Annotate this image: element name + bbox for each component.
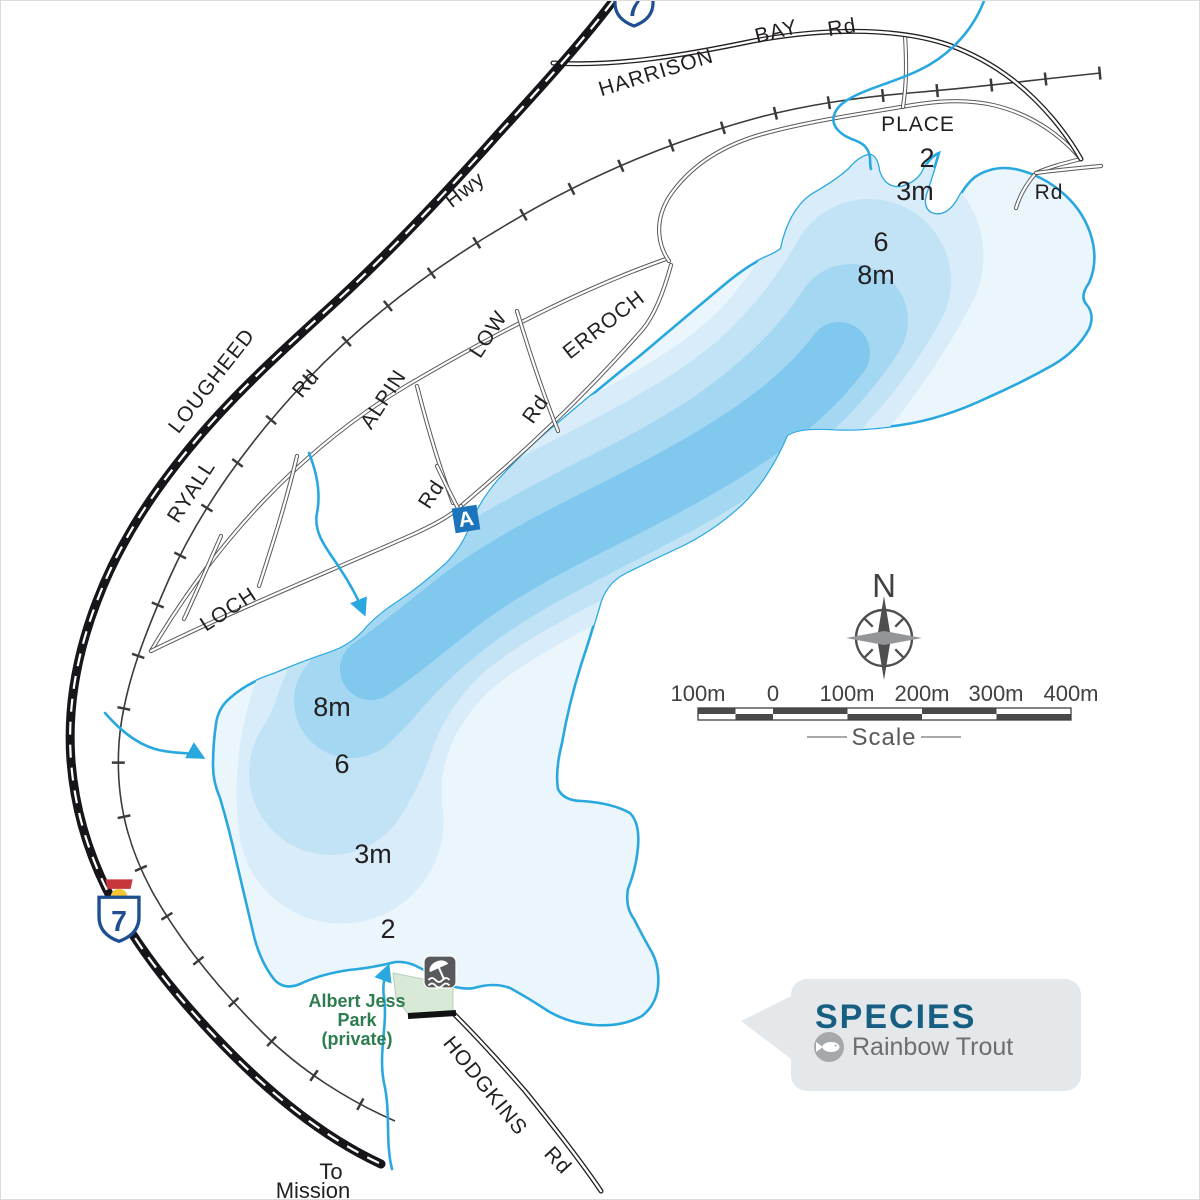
boat-access-marker: A	[452, 505, 481, 534]
map-canvas: 7 7 A LOUGHEED Hwy HARRISON BAY Rd PLACE…	[1, 1, 1200, 1200]
depth-ne-8m: 8m	[857, 260, 895, 290]
label-low: LOW	[465, 307, 512, 362]
park-road-bar	[408, 1013, 456, 1016]
beach-icon	[424, 956, 456, 988]
label-place-rd: Rd	[1035, 181, 1064, 204]
depth-sw-8m: 8m	[313, 692, 351, 722]
scale-bar: 100m 0 100m 200m 300m 400m Scale	[670, 681, 1098, 751]
scale-bar-segments	[698, 708, 1071, 720]
park-label-line1: Albert Jess	[308, 991, 405, 1011]
scale-tick-400: 400m	[1043, 681, 1098, 706]
depth-sw-3m: 3m	[354, 839, 392, 869]
depth-contour-bands	[331, 256, 881, 821]
label-low-rd: Rd	[518, 391, 553, 428]
scale-tick-300: 300m	[968, 681, 1023, 706]
depth-sw-2: 2	[380, 914, 395, 944]
lake	[213, 153, 1094, 1025]
park-label: Albert Jess Park (private)	[308, 991, 405, 1049]
road-hodgkins	[453, 1013, 601, 1191]
species-name: Rainbow Trout	[852, 1033, 1013, 1061]
road-harrison-bay	[553, 31, 1081, 159]
label-ryall-rd: Rd	[288, 365, 324, 402]
label-mission: Mission	[276, 1178, 351, 1200]
depth-ne-6: 6	[873, 227, 888, 257]
label-harrison: HARRISON	[596, 44, 716, 101]
scale-tick-200: 200m	[894, 681, 949, 706]
depth-ne-2: 2	[919, 143, 934, 173]
species-panel-title: SPECIES	[815, 998, 976, 1036]
label-harrison-rd: Rd	[826, 14, 858, 41]
highway-7-shield-top: 7	[615, 1, 653, 26]
label-alpin: ALPIN	[356, 366, 411, 434]
road-cross-mid	[259, 456, 297, 586]
park-label-line3: (private)	[321, 1029, 392, 1049]
label-place: PLACE	[881, 113, 955, 136]
scale-tick-left100: 100m	[670, 681, 725, 706]
species-panel: SPECIES Rainbow Trout	[741, 979, 1081, 1091]
label-loch: LOCH	[196, 583, 261, 636]
park-label-line2: Park	[337, 1010, 377, 1030]
depth-sw-6: 6	[334, 749, 349, 779]
shield-number: 7	[626, 1, 641, 22]
depth-ne-3m: 3m	[896, 176, 934, 206]
label-lougheed-hwy: Hwy	[441, 167, 490, 212]
label-bay: BAY	[753, 15, 801, 48]
compass-rose: N	[846, 567, 922, 680]
species-panel-tail	[741, 996, 791, 1059]
stream-northwest-creek	[309, 453, 364, 613]
scale-caption: Scale	[851, 724, 916, 751]
lake-map: 7 7 A LOUGHEED Hwy HARRISON BAY Rd PLACE…	[0, 0, 1200, 1200]
fish-icon	[814, 1032, 844, 1062]
shield-number: 7	[111, 906, 127, 938]
scale-tick-100: 100m	[819, 681, 874, 706]
scale-tick-0: 0	[767, 681, 779, 706]
